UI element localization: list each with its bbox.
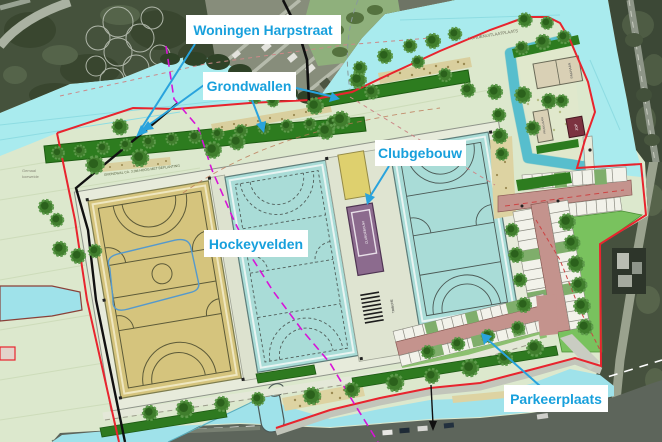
svg-text:Woningen Harpstraat: Woningen Harpstraat bbox=[193, 23, 333, 38]
svg-text:Clubgebouw: Clubgebouw bbox=[378, 145, 462, 161]
svg-text:Parkeerplaats: Parkeerplaats bbox=[510, 391, 602, 407]
svg-text:Grondwallen: Grondwallen bbox=[207, 78, 292, 94]
svg-text:Gemaal: Gemaal bbox=[22, 168, 36, 173]
svg-text:koeweide: koeweide bbox=[22, 174, 40, 179]
svg-text:Hockeyvelden: Hockeyvelden bbox=[209, 236, 303, 252]
